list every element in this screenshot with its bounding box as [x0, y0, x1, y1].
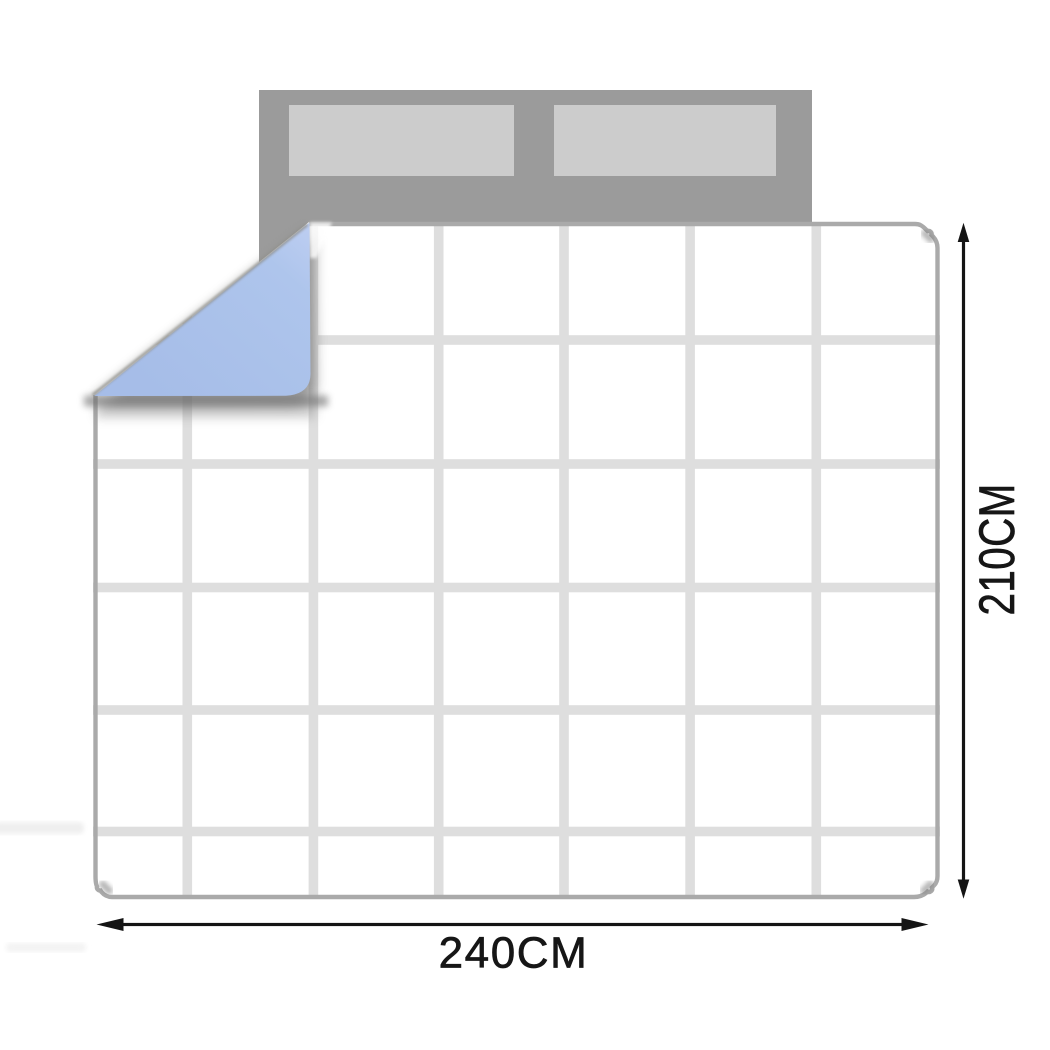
svg-text:210CM: 210CM	[969, 483, 1025, 615]
svg-text:240CM: 240CM	[439, 929, 589, 978]
